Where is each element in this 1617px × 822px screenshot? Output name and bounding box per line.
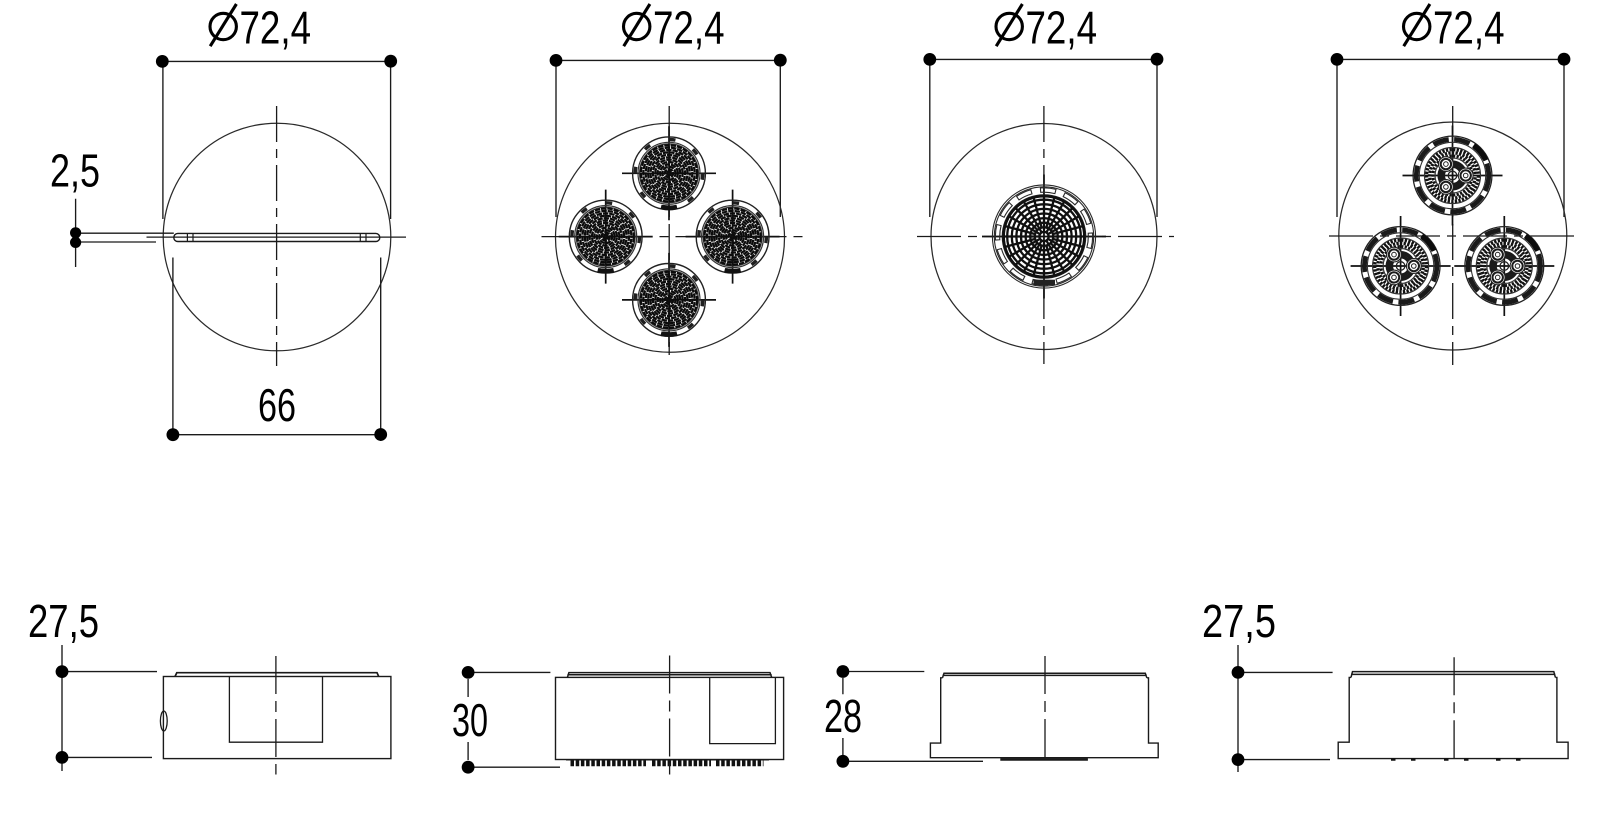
svg-text:72,4: 72,4 xyxy=(653,2,725,54)
svg-text:72,4: 72,4 xyxy=(1026,2,1098,54)
svg-text:27,5: 27,5 xyxy=(28,595,99,647)
svg-text:72,4: 72,4 xyxy=(1433,2,1505,54)
svg-text:27,5: 27,5 xyxy=(1202,595,1276,647)
svg-text:72,4: 72,4 xyxy=(240,2,312,54)
svg-text:2,5: 2,5 xyxy=(50,145,100,197)
svg-text:30: 30 xyxy=(452,694,488,746)
svg-text:66: 66 xyxy=(258,379,296,431)
svg-text:28: 28 xyxy=(824,690,862,742)
